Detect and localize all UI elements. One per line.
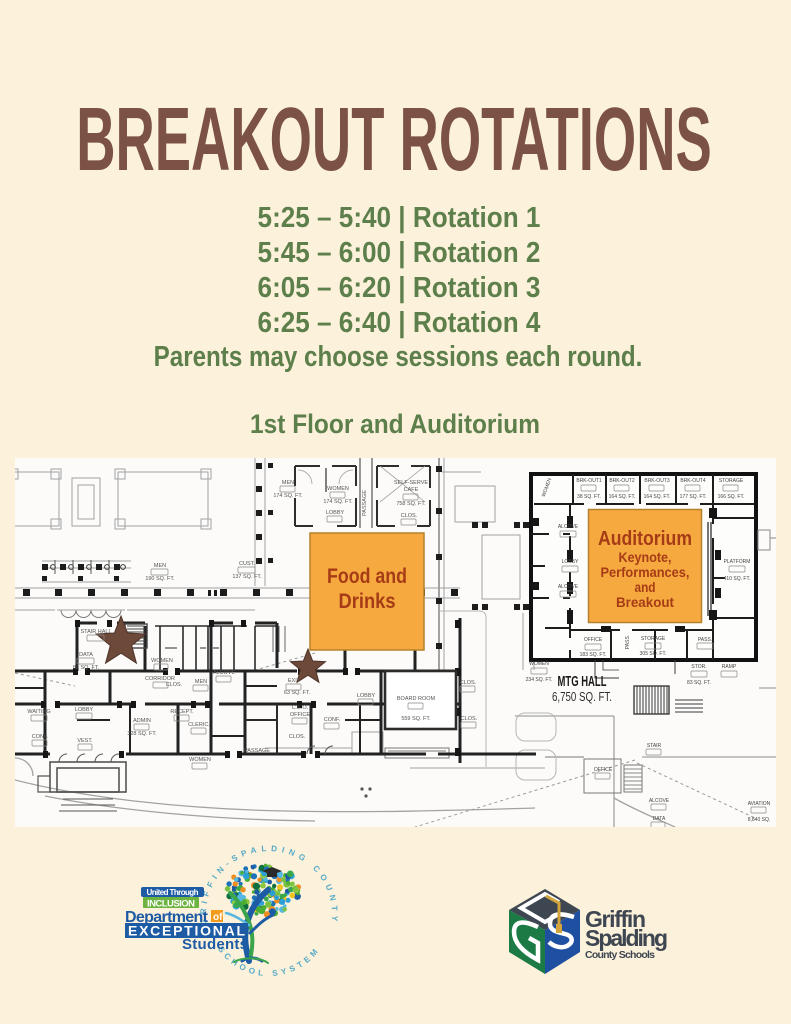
svg-text:BRK-OUT4: BRK-OUT4 <box>680 478 706 484</box>
svg-text:RECEPT.: RECEPT. <box>170 709 194 715</box>
svg-text:83 SQ. FT.: 83 SQ. FT. <box>687 680 711 686</box>
svg-text:OFFICE: OFFICE <box>584 637 603 643</box>
svg-text:305 SQ. FT.: 305 SQ. FT. <box>640 651 667 657</box>
svg-text:LOBBY: LOBBY <box>562 559 579 565</box>
svg-text:63 SQ. FT.: 63 SQ. FT. <box>284 690 311 696</box>
svg-text:8,840 SQ.: 8,840 SQ. <box>748 817 771 823</box>
svg-text:VEST.: VEST. <box>77 738 93 744</box>
svg-text:AVIATION: AVIATION <box>748 801 771 807</box>
svg-text:LOBBY: LOBBY <box>357 693 376 699</box>
svg-text:of: of <box>213 912 223 923</box>
svg-text:LOBBY: LOBBY <box>75 707 94 713</box>
svg-text:137 SQ. FT.: 137 SQ. FT. <box>232 574 262 580</box>
svg-text:EXIT: EXIT <box>288 678 301 684</box>
svg-text:INCLUSION: INCLUSION <box>147 899 195 910</box>
svg-text:CLOS.: CLOS. <box>289 734 306 740</box>
svg-text:MEN: MEN <box>195 679 207 685</box>
svg-text:County Schools: County Schools <box>585 949 655 961</box>
svg-text:Auditorium: Auditorium <box>598 527 692 550</box>
svg-text:STAIR HALL: STAIR HALL <box>80 629 111 635</box>
svg-text:PASSAGE: PASSAGE <box>244 748 270 754</box>
svg-text:Breakout: Breakout <box>616 594 674 610</box>
svg-text:Spalding: Spalding <box>585 925 668 951</box>
svg-text:ADMIN: ADMIN <box>133 718 151 724</box>
svg-text:WOMEN: WOMEN <box>529 661 549 667</box>
svg-text:MEN: MEN <box>282 480 294 486</box>
svg-text:CLOS.: CLOS. <box>460 680 477 686</box>
svg-text:WOMEN: WOMEN <box>327 486 349 492</box>
svg-text:MTG HALL: MTG HALL <box>558 674 607 690</box>
svg-text:DATA: DATA <box>653 816 666 822</box>
svg-text:164 SQ. FT.: 164 SQ. FT. <box>609 494 636 500</box>
svg-text:CUST.: CUST. <box>239 561 255 567</box>
svg-text:United Through: United Through <box>147 888 199 897</box>
svg-text:Performances,: Performances, <box>601 564 690 580</box>
svg-text:410 SQ. FT.: 410 SQ. FT. <box>724 576 751 582</box>
svg-text:Drinks: Drinks <box>339 590 396 613</box>
svg-text:LOBBY: LOBBY <box>326 510 345 516</box>
svg-text:C.E.O.: C.E.O. <box>292 705 309 711</box>
svg-text:BRK-OUT2: BRK-OUT2 <box>609 478 635 484</box>
svg-text:177 SQ. FT.: 177 SQ. FT. <box>680 494 707 500</box>
svg-text:WAITING: WAITING <box>27 709 50 715</box>
svg-text:190 SQ. FT.: 190 SQ. FT. <box>145 576 175 582</box>
svg-text:BRK-OUT3: BRK-OUT3 <box>644 478 670 484</box>
svg-text:BOARD ROOM: BOARD ROOM <box>397 696 436 702</box>
svg-text:DATA: DATA <box>79 652 93 658</box>
svg-text:MEN: MEN <box>154 563 166 569</box>
svg-text:and: and <box>635 579 656 595</box>
svg-text:174 SQ. FT.: 174 SQ. FT. <box>273 493 303 499</box>
svg-text:38 SQ. FT.: 38 SQ. FT. <box>577 494 601 500</box>
svg-text:559 SQ. FT.: 559 SQ. FT. <box>401 716 431 722</box>
svg-text:6,750 SQ. FT.: 6,750 SQ. FT. <box>552 690 612 704</box>
svg-text:328 SQ. FT.: 328 SQ. FT. <box>127 731 157 737</box>
svg-text:Students: Students <box>182 936 248 953</box>
svg-text:STORAGE: STORAGE <box>719 478 744 484</box>
svg-text:174 SQ. FT.: 174 SQ. FT. <box>323 499 353 505</box>
svg-text:166 SQ. FT.: 166 SQ. FT. <box>718 494 745 500</box>
svg-text:RAMP: RAMP <box>722 664 737 670</box>
svg-text:ALCOVE: ALCOVE <box>558 524 579 530</box>
svg-text:OFFICE: OFFICE <box>594 767 613 773</box>
svg-text:ALCOVE: ALCOVE <box>213 670 236 676</box>
svg-text:183 SQ. FT.: 183 SQ. FT. <box>580 652 607 658</box>
svg-text:PLATFORM: PLATFORM <box>724 559 751 565</box>
svg-text:WOMEN: WOMEN <box>151 658 173 664</box>
svg-text:OFFICE: OFFICE <box>290 712 310 718</box>
svg-text:CONF.: CONF. <box>32 734 49 740</box>
svg-text:CAFE: CAFE <box>404 487 419 493</box>
svg-text:STOR.: STOR. <box>691 664 706 670</box>
svg-text:STORAGE: STORAGE <box>641 636 666 642</box>
svg-text:CLOS.: CLOS. <box>461 716 478 722</box>
svg-text:164 SQ. FT.: 164 SQ. FT. <box>644 494 671 500</box>
svg-text:ALCOVE: ALCOVE <box>558 584 579 590</box>
svg-text:PASS.: PASS. <box>698 637 712 643</box>
svg-text:82 SQ. FT.: 82 SQ. FT. <box>73 665 100 671</box>
svg-text:Keynote,: Keynote, <box>619 549 672 565</box>
svg-text:758 SQ. FT.: 758 SQ. FT. <box>396 501 426 507</box>
svg-text:Food and: Food and <box>327 565 407 588</box>
svg-text:234 SQ. FT.: 234 SQ. FT. <box>526 677 553 683</box>
svg-text:SELF-SERVE: SELF-SERVE <box>394 480 428 486</box>
svg-text:CLOS.: CLOS. <box>401 513 418 519</box>
svg-text:ALCOVE: ALCOVE <box>649 798 670 804</box>
svg-text:PASSAGE: PASSAGE <box>362 490 368 516</box>
svg-text:CLERIC.: CLERIC. <box>188 722 210 728</box>
svg-text:STAIR: STAIR <box>647 743 662 749</box>
svg-text:BRK-OUT1: BRK-OUT1 <box>576 478 602 484</box>
svg-text:WOMEN: WOMEN <box>189 757 211 763</box>
svg-text:CONF.: CONF. <box>324 717 341 723</box>
svg-text:PASS.: PASS. <box>625 635 631 649</box>
